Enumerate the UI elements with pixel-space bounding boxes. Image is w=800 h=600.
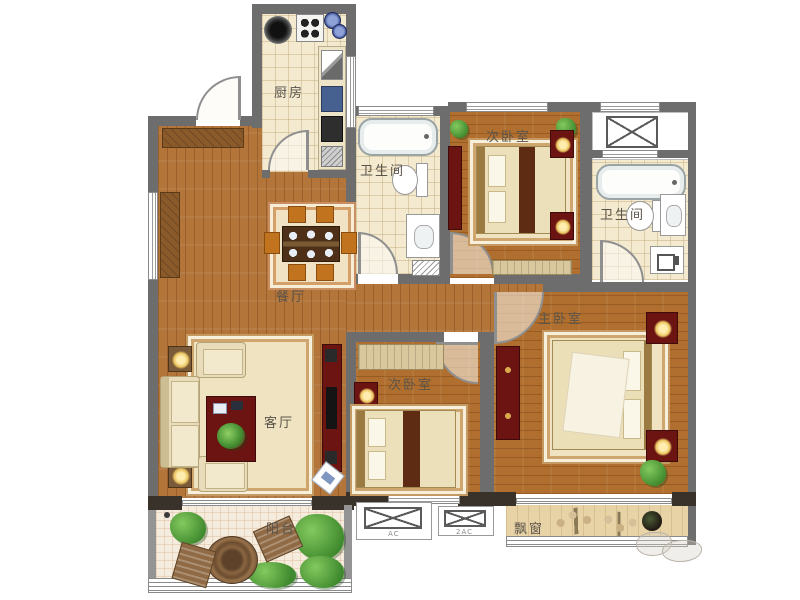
dining-chair-icon [264,232,280,254]
kitchen-label: 厨房 [274,82,304,101]
flower-pot-icon [642,511,662,531]
entry-cabinet-icon [162,128,244,148]
bathtub-drain [424,134,429,139]
counter-shelf-icon [321,146,343,167]
gas-stove-icon [296,14,324,42]
ac-right-label: 2AC [456,528,473,536]
dining-table-icon [282,226,340,262]
wall [480,332,494,494]
wardrobe-icon [448,146,462,230]
wall [240,116,262,126]
window-niche-bath [602,150,658,158]
entrance-door-arc [196,76,240,120]
entrance-door-leaf [238,76,241,120]
wall-left-outer [148,116,158,510]
counter-sink-icon [321,50,343,80]
plant-icon [640,460,666,486]
sink-basin-icon [332,24,347,39]
plant-icon [294,514,344,560]
window-niche-top [600,102,660,112]
bath-cabinet-icon [650,246,684,274]
shoe-cabinet-icon [160,192,180,278]
wall [148,496,182,510]
wall [252,4,262,128]
dining-label: 餐厅 [276,286,306,305]
balcony-wall [148,510,156,584]
sketch-flowers [662,540,702,562]
dining-chair-icon [288,206,306,223]
wall [252,4,356,14]
nightstand-icon [646,312,678,344]
plant-icon [170,512,206,544]
bay-window-label: 飘窗 [514,518,544,537]
window-bedroom-top [466,102,548,112]
bedroom-top-door-leaf [450,232,453,274]
wall [346,4,356,56]
kitchen-door-leaf [306,130,309,170]
dining-chair-icon [341,232,357,254]
shower-mat-icon [412,260,440,276]
lamp-table-icon [168,346,192,372]
armchair-icon [196,342,246,378]
dresser-icon [492,260,572,275]
living-label: 客厅 [264,412,294,431]
bath-right-label: 卫生间 [600,204,645,223]
bed-icon [356,410,456,488]
master-bedroom-label: 主卧室 [538,308,583,327]
nightstand-icon [550,130,574,158]
vanity-sink-icon [660,194,686,236]
wall [543,282,688,292]
balcony-dot [164,512,170,518]
nightstand-icon [550,212,574,240]
tv-cabinet-icon [322,344,342,472]
wall [262,170,270,178]
bath-top-door-leaf [358,232,361,274]
ac-platform-icon [606,116,658,148]
bath-top-label: 卫生间 [360,160,405,179]
wall [494,492,516,506]
bed-icon [552,340,652,450]
vanity-sink-icon [406,214,440,258]
nightstand-icon [646,430,678,462]
sofa-icon [160,376,200,468]
dining-chair-icon [316,206,334,223]
wall-right-outer [688,102,696,545]
coffee-table-icon [206,396,256,462]
dining-chair-icon [288,264,306,281]
wall [308,170,346,178]
plant-icon [450,120,468,138]
ac-unit-icon [444,510,486,527]
window-kitchen-right [346,56,356,128]
wok-stove-icon [264,16,292,44]
wardrobe-icon [496,346,520,440]
counter-appliance-icon [321,116,343,142]
bedroom-top-label: 次卧室 [486,126,531,145]
plant-icon [300,556,344,588]
wall [580,102,592,290]
wall [672,492,696,506]
dining-chair-icon [316,264,334,281]
floor-plan: AC 2AC 厨房 卫生间 次卧室 卫生间 主卧室 餐厅 客厅 次卧室 阳台 飘… [0,0,800,600]
bedroom-mid-label: 次卧室 [388,374,433,393]
wall [346,332,444,342]
window-bath-top [358,106,434,116]
ac-unit-icon [364,507,422,529]
master-door-leaf [494,292,497,344]
window-dining-left [148,192,158,280]
counter-appliance-icon [321,86,343,112]
balcony-sliding-door [182,500,312,506]
bath-right-door-leaf [600,240,603,282]
bathtub-drain [672,180,677,185]
closet-icon [358,344,444,370]
balcony-label: 阳台 [266,518,296,537]
ac-left-label: AC [388,530,400,538]
